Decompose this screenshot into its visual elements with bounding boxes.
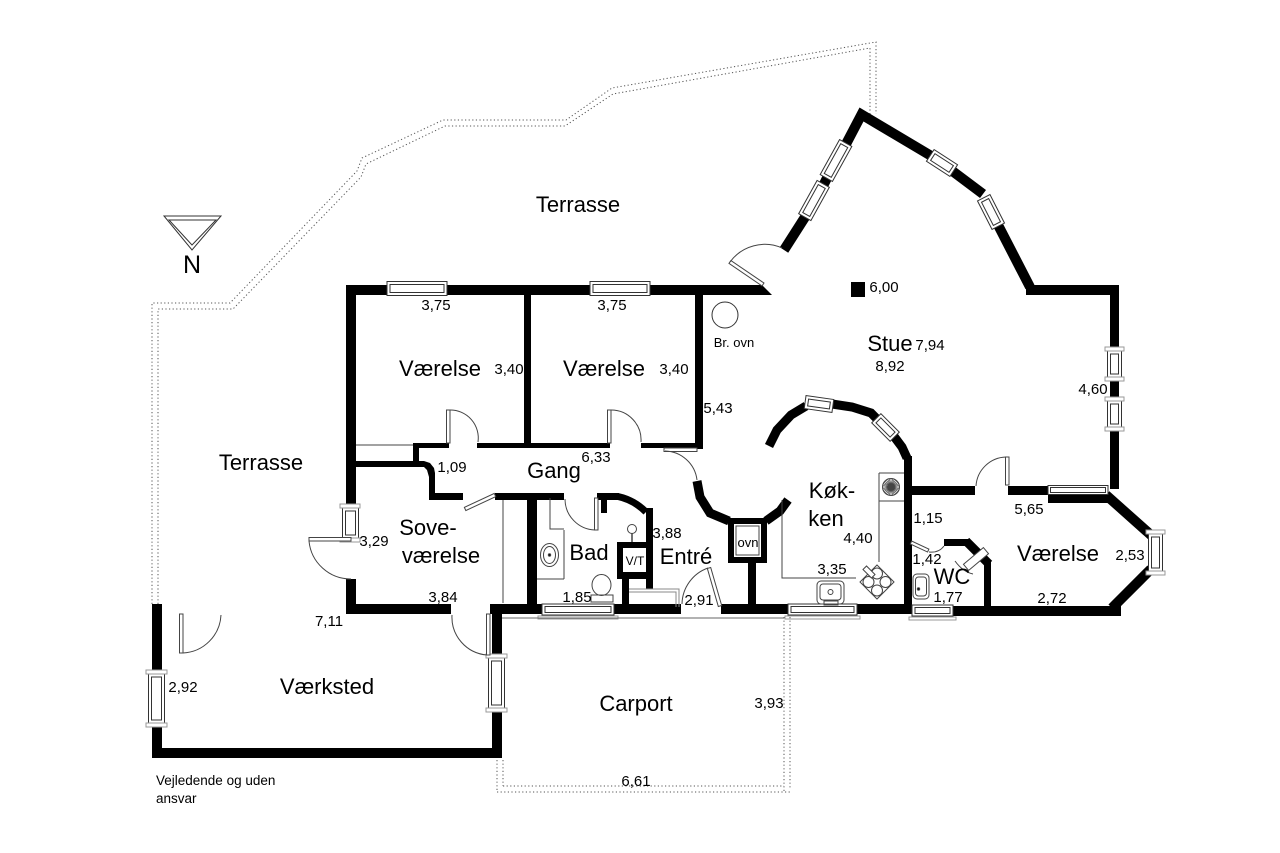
svg-text:2,92: 2,92 bbox=[168, 679, 197, 696]
svg-text:2,91: 2,91 bbox=[684, 592, 713, 609]
svg-text:Værelse: Værelse bbox=[1017, 541, 1099, 566]
svg-text:4,60: 4,60 bbox=[1078, 381, 1107, 398]
svg-text:3,75: 3,75 bbox=[421, 297, 450, 314]
svg-text:3,29: 3,29 bbox=[359, 533, 388, 550]
svg-text:Bad: Bad bbox=[569, 540, 608, 565]
svg-text:2,53: 2,53 bbox=[1115, 547, 1144, 564]
svg-text:Carport: Carport bbox=[599, 691, 672, 716]
svg-text:2,72: 2,72 bbox=[1037, 590, 1066, 607]
svg-text:3,40: 3,40 bbox=[659, 361, 688, 378]
svg-text:V/T: V/T bbox=[626, 554, 645, 568]
svg-text:Vejledende og uden: Vejledende og uden bbox=[156, 773, 275, 788]
svg-text:Entré: Entré bbox=[660, 544, 713, 569]
svg-text:3,84: 3,84 bbox=[428, 589, 457, 606]
svg-text:ansvar: ansvar bbox=[156, 791, 197, 806]
svg-text:3,93: 3,93 bbox=[754, 695, 783, 712]
svg-text:7,94: 7,94 bbox=[915, 337, 944, 354]
svg-text:ken: ken bbox=[808, 506, 843, 531]
svg-text:6,33: 6,33 bbox=[581, 449, 610, 466]
svg-text:Sove-: Sove- bbox=[399, 515, 456, 540]
svg-text:Værksted: Værksted bbox=[280, 674, 374, 699]
svg-text:1,09: 1,09 bbox=[437, 459, 466, 476]
svg-text:ovn: ovn bbox=[738, 535, 759, 550]
svg-text:1,42: 1,42 bbox=[912, 551, 941, 568]
svg-text:Stue: Stue bbox=[867, 331, 912, 356]
svg-text:Br. ovn: Br. ovn bbox=[714, 335, 754, 350]
svg-text:værelse: værelse bbox=[402, 543, 480, 568]
svg-text:7,11: 7,11 bbox=[315, 613, 343, 630]
svg-text:5,43: 5,43 bbox=[703, 400, 732, 417]
svg-text:6,00: 6,00 bbox=[869, 279, 898, 296]
svg-text:Køk-: Køk- bbox=[809, 478, 855, 503]
svg-text:Gang: Gang bbox=[527, 458, 581, 483]
svg-text:1,15: 1,15 bbox=[913, 510, 942, 527]
svg-text:Terrasse: Terrasse bbox=[536, 192, 620, 217]
svg-text:8,92: 8,92 bbox=[875, 358, 904, 375]
svg-text:3,88: 3,88 bbox=[652, 525, 681, 542]
svg-text:4,40: 4,40 bbox=[843, 530, 872, 547]
svg-text:3,40: 3,40 bbox=[494, 361, 523, 378]
svg-text:5,65: 5,65 bbox=[1014, 501, 1043, 518]
svg-text:Terrasse: Terrasse bbox=[219, 450, 303, 475]
svg-text:1,85: 1,85 bbox=[562, 589, 591, 606]
svg-text:6,61: 6,61 bbox=[621, 773, 650, 790]
svg-text:N: N bbox=[183, 251, 201, 279]
svg-text:Værelse: Værelse bbox=[563, 356, 645, 381]
svg-text:3,75: 3,75 bbox=[597, 297, 626, 314]
svg-text:Værelse: Værelse bbox=[399, 356, 481, 381]
svg-text:1,77: 1,77 bbox=[933, 589, 962, 606]
svg-text:3,35: 3,35 bbox=[817, 561, 846, 578]
